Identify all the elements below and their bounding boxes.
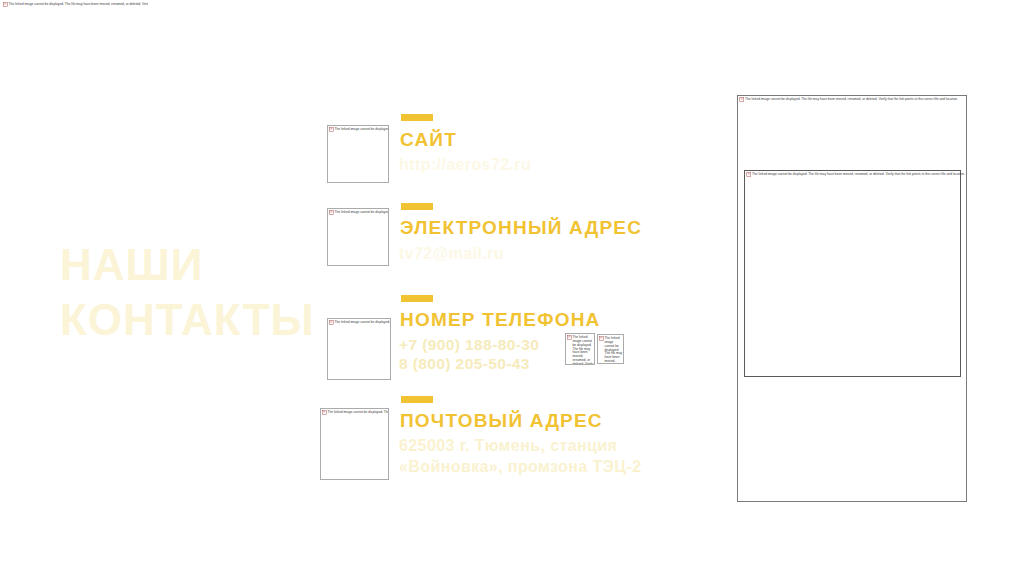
small-image-placeholder-2: ✕ The linked image cannot be displayed. … [597,334,624,364]
inner-image-frame: ✕ The linked image cannot be displayed. … [744,170,961,377]
placeholder-text: The linked image cannot be displayed. Th… [328,410,390,414]
placeholder-text: The linked image cannot be displayed. Th… [745,97,958,101]
postal-image-placeholder: ✕ The linked image cannot be displayed. … [320,408,389,480]
placeholder-text: The linked image cannot be displayed. Th… [335,127,390,131]
section-heading-postal: ПОЧТОВЫЙ АДРЕС [400,410,603,432]
phone-number-2: 8 (800) 205-50-43 [399,354,530,373]
section-heading-email: ЭЛЕКТРОННЫЙ АДРЕС [400,217,642,239]
postal-address-line1: 625003 г. Тюмень, станция [399,436,617,455]
postal-address-line2: «Войновка», промзона ТЭЦ-2 [399,457,641,476]
section-heading-site: САЙТ [400,129,457,151]
placeholder-text: The linked image cannot be displayed. Th… [9,2,149,6]
accent-dash [401,396,433,403]
section-heading-phone: НОМЕР ТЕЛЕФОНА [400,309,600,331]
placeholder-text: The linked image cannot be displayed. Th… [605,336,625,364]
email-address: tv72@mail.ru [399,244,504,263]
site-image-placeholder: ✕ The linked image cannot be displayed. … [327,125,389,183]
corner-broken-image-note: ✕ The linked image cannot be displayed. … [2,1,148,9]
broken-image-icon: ✕ [740,97,745,102]
small-image-placeholder-1: ✕ The linked image cannot be displayed. … [565,333,595,365]
broken-image-icon: ✕ [747,172,752,177]
broken-image-icon: ✕ [329,210,334,215]
slide-title-line2: КОНТАКТЫ [60,292,315,347]
broken-image-icon: ✕ [329,320,334,325]
email-image-placeholder: ✕ The linked image cannot be displayed. … [327,208,389,266]
placeholder-text: The linked image cannot be displayed. Th… [752,172,965,176]
placeholder-text: The linked image cannot be displayed. Th… [335,320,392,324]
accent-dash [401,295,433,302]
slide-title-line1: НАШИ [60,237,315,292]
site-url: http://aeros72.ru [399,155,531,174]
accent-dash [401,203,433,210]
broken-image-icon: ✕ [322,410,327,415]
placeholder-text: The linked image cannot be displayed. Th… [573,335,596,365]
broken-image-icon: ✕ [599,336,604,341]
slide-title: НАШИ КОНТАКТЫ [60,237,315,347]
presentation-slide: ✕ The linked image cannot be displayed. … [0,0,1024,574]
placeholder-text: The linked image cannot be displayed. Th… [335,210,390,214]
phone-number-1: +7 (900) 188-80-30 [399,335,539,354]
phone-image-placeholder: ✕ The linked image cannot be displayed. … [327,318,391,380]
accent-dash [401,114,433,121]
broken-image-icon: ✕ [567,335,572,340]
broken-image-icon: ✕ [329,127,334,132]
broken-image-icon: ✕ [3,2,8,7]
